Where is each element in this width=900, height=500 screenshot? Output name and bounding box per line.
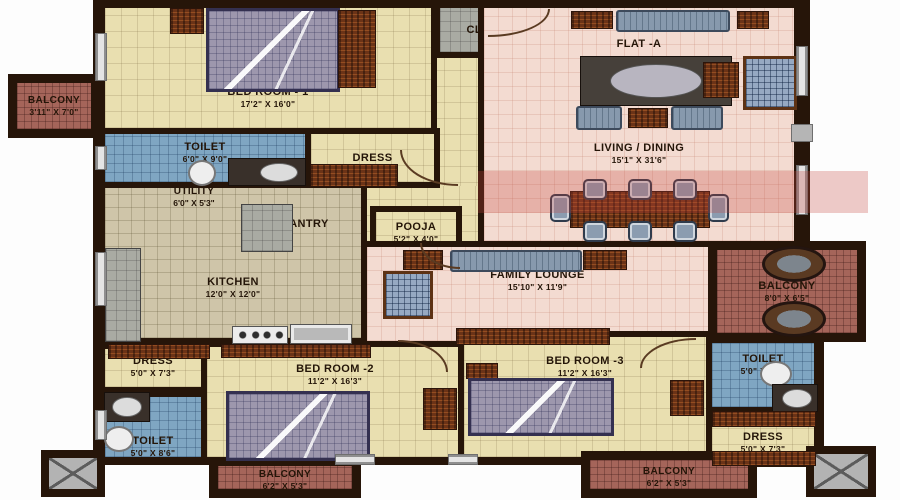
wardrobe-bed2-top2 <box>221 344 371 358</box>
window <box>335 454 375 465</box>
sofa-living-left <box>576 106 622 130</box>
corner-table-living <box>743 56 797 110</box>
utility-dims: 6'0" X 5'3" <box>138 198 250 208</box>
sofa-living-top <box>616 10 730 32</box>
wardrobe-bed3-right <box>670 380 704 416</box>
washbasin-toilet2 <box>112 397 142 417</box>
watermark-band <box>478 171 868 213</box>
window <box>95 252 107 306</box>
planter <box>762 301 826 337</box>
sofa-living-right <box>671 106 723 130</box>
pantry-counter <box>241 204 293 252</box>
window <box>448 454 478 465</box>
dress-2-dims: 5'0" X 7'3" <box>105 368 201 378</box>
wardrobe-bed2-top1 <box>108 344 210 359</box>
stair-column-left <box>41 450 105 497</box>
dining-chair <box>583 221 607 242</box>
wardrobe-bed1-left <box>170 8 204 34</box>
dining-chair <box>673 221 697 242</box>
side-table-living-1 <box>571 11 613 29</box>
utility-labels: UTILITY 6'0" X 5'3" <box>138 186 250 208</box>
pooja-label: POOJA <box>376 221 456 234</box>
balcony-bed2-label: BALCONY <box>218 469 352 481</box>
kitchen-label: KITCHEN <box>105 276 361 289</box>
planter <box>762 246 826 282</box>
bedroom-1-dims: 17'2" X 16'0" <box>105 99 431 109</box>
balcony-right-label: BALCONY <box>717 280 857 293</box>
wc-toilet2 <box>104 426 134 452</box>
balcony-bed3-dims: 6'2" X 5'3" <box>590 478 748 488</box>
dress-3-label: DRESS <box>712 431 814 444</box>
wc-toilet1 <box>188 160 216 186</box>
balcony-left-label: BALCONY <box>17 95 91 107</box>
stove <box>232 326 288 344</box>
floor-plan: BED ROOM - 1 17'2" X 16'0" TOILET 6'0" X… <box>0 0 900 500</box>
kitchen-sink <box>290 324 352 344</box>
washbasin-toilet3 <box>782 389 812 408</box>
living-dining-dims: 15'1" X 31'6" <box>484 155 794 165</box>
armchair-living <box>703 62 739 98</box>
window <box>796 46 808 96</box>
toilet-1-label: TOILET <box>105 141 305 154</box>
balcony-bed3-label: BALCONY <box>590 466 748 478</box>
window <box>95 33 107 81</box>
utility-label: UTILITY <box>138 186 250 198</box>
balcony-left-dims: 3'11" X 7'0" <box>17 107 91 117</box>
wall-ledge <box>791 124 813 142</box>
wardrobe-bed2-right <box>423 388 457 430</box>
toilet-3-label: TOILET <box>712 353 814 366</box>
bedroom-2-dims: 11'2" X 16'3" <box>207 376 463 386</box>
room-balcony-left: BALCONY 3'11" X 7'0" <box>8 74 100 138</box>
wardrobe-dress1 <box>310 164 398 187</box>
wardrobe-bed1-right <box>338 10 376 88</box>
window <box>95 410 107 440</box>
bed-3 <box>468 378 614 436</box>
center-table <box>610 64 702 98</box>
bedroom-3-dims: 11'2" X 16'3" <box>464 368 706 378</box>
tv-unit-family <box>456 328 610 345</box>
living-dining-label: LIVING / DINING <box>484 142 794 155</box>
dining-chair <box>628 221 652 242</box>
tea-table-living <box>628 108 668 128</box>
wardrobe-dress3-top <box>712 411 816 427</box>
corner-table-family <box>383 271 433 319</box>
balcony-bed2-dims: 6'2" X 5'3" <box>218 481 352 491</box>
nightstand-bed3 <box>466 363 498 379</box>
washbasin-toilet1 <box>260 163 298 182</box>
stair-column-right <box>806 446 876 497</box>
kitchen-dims: 12'0" X 12'0" <box>105 289 361 299</box>
bed-1 <box>206 8 340 92</box>
window <box>95 146 107 170</box>
kitchen-platform-left <box>105 248 141 342</box>
side-table-living-2 <box>737 11 769 29</box>
flat-label: FLAT -A <box>484 38 794 51</box>
wardrobe-dress3-bottom <box>712 451 816 466</box>
bed-2 <box>226 391 370 461</box>
side-table-family-2 <box>583 250 627 270</box>
sofa-family <box>450 250 582 272</box>
